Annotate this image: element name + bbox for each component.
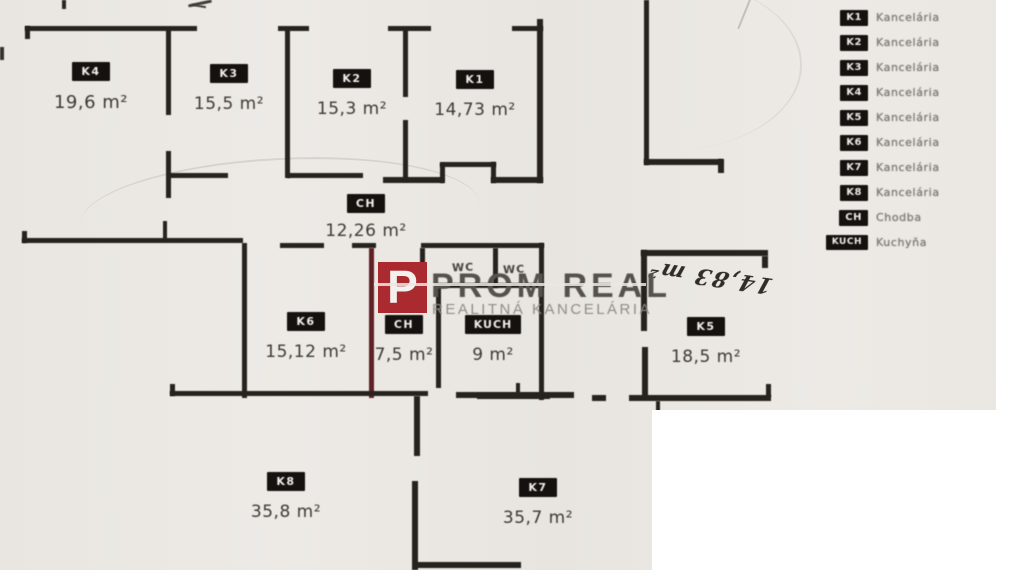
room-k4: K4 19,6 m²: [36, 60, 146, 113]
wall-segment: [412, 481, 418, 570]
legend-row-k3: K3 Kancelária: [824, 55, 994, 80]
room-area-k3: 15,5 m²: [182, 94, 276, 114]
room-badge-ch-small: CH: [385, 315, 423, 334]
room-area-k4: 19,6 m²: [36, 92, 146, 113]
legend-row-k1: K1 Kancelária: [824, 5, 994, 30]
white-patch-bottom-right: [652, 410, 1011, 570]
legend-row-k7: K7 Kancelária: [824, 155, 994, 180]
room-ch-corridor: CH 12,26 m²: [318, 192, 414, 241]
legend-label-kuch: Kuchyňa: [876, 236, 927, 249]
legend-label-ch: Chodba: [876, 211, 922, 224]
wall-segment: [644, 0, 649, 165]
promreal-logo-letter: P: [387, 261, 418, 313]
legend-badge-k6: K6: [840, 135, 868, 151]
wall-segment: [242, 243, 247, 398]
legend-badge-k7: K7: [840, 160, 868, 176]
wall-segment: [166, 29, 171, 115]
wall-segment: [642, 347, 648, 399]
room-k7: K7 35,7 m²: [492, 476, 584, 528]
scan-artifact-mark: [188, 0, 212, 7]
scanned-floorplan-page: K4 19,6 m² K3 15,5 m² K2 15,3 m² K1 14,7…: [0, 0, 1011, 570]
scan-artifact-mark: [0, 47, 4, 60]
wall-segment: [25, 26, 197, 31]
wall-segment: [278, 26, 309, 31]
wall-segment: [440, 162, 496, 167]
room-area-k1: 14,73 m²: [428, 100, 522, 120]
room-ch-small: CH 7,5 m²: [366, 313, 442, 365]
wall-segment: [421, 243, 544, 248]
room-area-k2: 15,3 m²: [310, 99, 394, 119]
room-kuch: KUCH 9 m²: [452, 313, 534, 365]
room-badge-ch-corridor: CH: [347, 194, 385, 213]
legend-label-k7: Kancelária: [876, 161, 940, 174]
wall-segment: [718, 159, 724, 173]
wall-segment: [287, 173, 363, 178]
legend-label-k8: Kancelária: [876, 186, 940, 199]
room-badge-k2: K2: [333, 69, 370, 88]
legend-row-k4: K4 Kancelária: [824, 80, 994, 105]
legend-label-k4: Kancelária: [876, 86, 940, 99]
room-area-ch-corridor: 12,26 m²: [318, 221, 414, 241]
legend-badge-kuch: KUCH: [826, 235, 868, 250]
wall-segment: [629, 395, 771, 401]
room-badge-k6: K6: [287, 312, 324, 331]
wall-segment: [766, 384, 771, 397]
wall-segment: [414, 396, 420, 456]
legend-label-k3: Kancelária: [876, 61, 940, 74]
room-area-kuch: 9 m²: [452, 345, 534, 365]
room-badge-k8: K8: [267, 472, 304, 491]
wall-segment: [456, 392, 574, 398]
wall-segment: [170, 391, 428, 396]
wall-segment: [415, 562, 521, 568]
legend-badge-ch: CH: [839, 210, 868, 226]
legend-row-k8: K8 Kancelária: [824, 180, 994, 205]
wall-segment: [491, 177, 543, 183]
room-k1: K1 14,73 m²: [428, 68, 522, 120]
room-k2: K2 15,3 m²: [310, 67, 394, 119]
watermark-stencil-slice: [374, 283, 646, 286]
wall-segment: [163, 221, 167, 239]
wall-segment: [280, 243, 324, 248]
room-k8: K8 35,8 m²: [240, 470, 332, 522]
legend-row-k5: K5 Kancelária: [824, 105, 994, 130]
legend-badge-k3: K3: [840, 60, 868, 76]
wall-segment: [644, 159, 723, 165]
legend-row-ch: CH Chodba: [824, 205, 994, 230]
scan-artifact-mark: [62, 0, 66, 9]
wall-segment: [285, 29, 290, 178]
room-area-k5: 18,5 m²: [662, 347, 750, 367]
room-badge-k5: K5: [687, 317, 724, 336]
room-badge-k4: K4: [72, 62, 109, 81]
watermark-tagline: REALITNÁ KANCELÁRIA: [432, 301, 652, 318]
wall-segment: [168, 173, 228, 178]
legend-label-k5: Kancelária: [876, 111, 940, 124]
legend-row-k2: K2 Kancelária: [824, 30, 994, 55]
room-area-k7: 35,7 m²: [492, 508, 584, 528]
wall-segment: [403, 29, 408, 97]
wall-segment: [537, 19, 543, 183]
room-badge-k3: K3: [210, 64, 247, 83]
room-k5: K5 18,5 m²: [662, 315, 750, 367]
room-area-k8: 35,8 m²: [240, 502, 332, 522]
scan-artifact-scratch: [737, 0, 752, 29]
legend-badge-k5: K5: [840, 110, 868, 126]
wall-segment: [383, 177, 444, 183]
promreal-logo: P: [378, 262, 427, 313]
wall-segment: [592, 395, 606, 401]
legend-badge-k4: K4: [840, 85, 868, 101]
legend-row-k6: K6 Kancelária: [824, 130, 994, 155]
room-area-ch-small: 7,5 m²: [366, 345, 442, 365]
legend: K1 Kancelária K2 Kancelária K3 Kancelári…: [824, 5, 994, 255]
wall-segment: [388, 26, 431, 31]
wall-segment: [516, 383, 520, 393]
scan-artifact-arc: [540, 0, 802, 150]
room-area-k6: 15,12 m²: [256, 342, 356, 362]
wall-segment: [403, 120, 408, 182]
legend-label-k2: Kancelária: [876, 36, 940, 49]
room-k3: K3 15,5 m²: [182, 62, 276, 114]
room-badge-k1: K1: [456, 70, 493, 89]
white-patch-right-edge: [996, 0, 1011, 570]
legend-row-kuch: KUCH Kuchyňa: [824, 230, 994, 255]
room-k6: K6 15,12 m²: [256, 310, 356, 362]
wall-segment: [22, 231, 27, 243]
legend-badge-k1: K1: [840, 10, 868, 26]
legend-badge-k8: K8: [840, 185, 868, 201]
wall-segment: [22, 238, 243, 243]
wall-segment: [25, 26, 30, 39]
legend-badge-k2: K2: [840, 35, 868, 51]
legend-label-k1: Kancelária: [876, 11, 940, 24]
room-badge-k7: K7: [519, 478, 556, 497]
wall-segment: [170, 384, 175, 396]
scan-artifact-mark: [192, 4, 206, 8]
legend-label-k6: Kancelária: [876, 136, 940, 149]
